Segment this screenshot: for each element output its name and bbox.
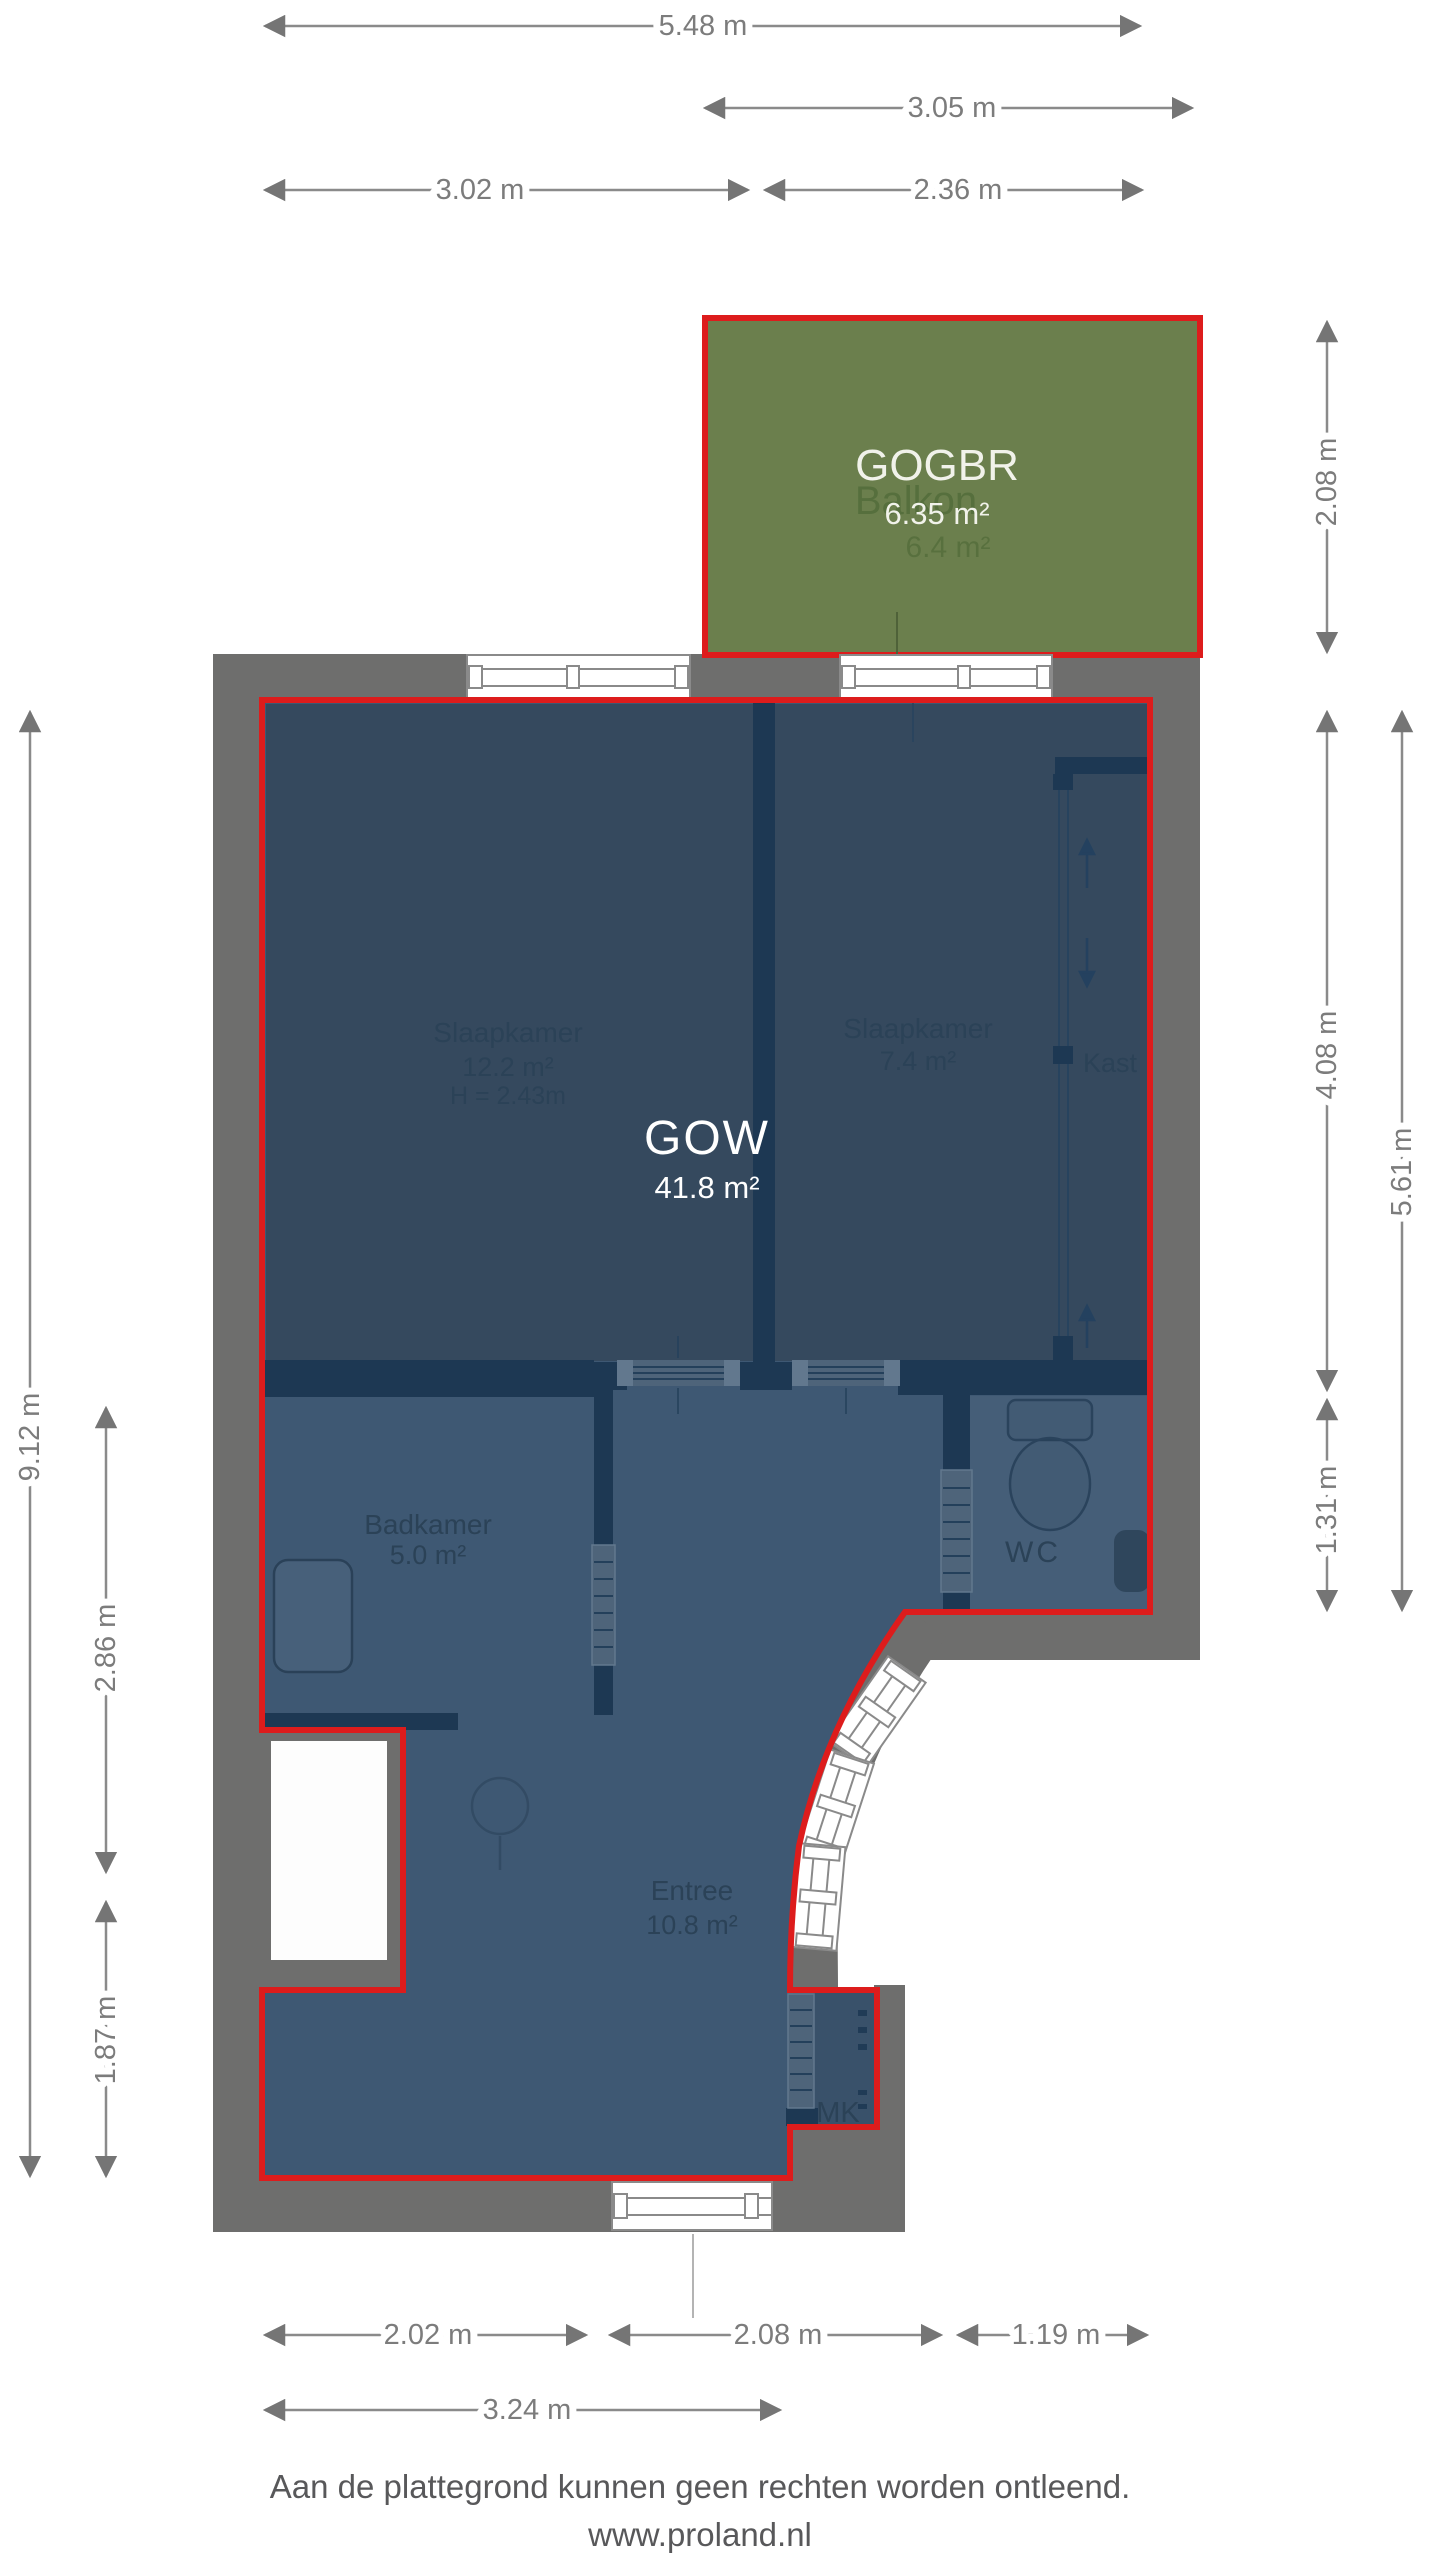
label-slaapkamer1-area: 12.2 m² — [462, 1052, 554, 1082]
dim-right-4: 5.61 m — [1386, 712, 1418, 1610]
dim-left-1: 9.12 m — [14, 712, 46, 2176]
toilet-icon — [1008, 1400, 1092, 1530]
label-kast: Kast — [1083, 1048, 1138, 1078]
dim-label: 9.12 m — [14, 1393, 46, 1482]
bathtub-icon — [274, 1560, 352, 1672]
wall-hall-2 — [740, 1362, 792, 1390]
balcony-name: GOGBR — [855, 441, 1019, 490]
dim-label: 3.05 m — [908, 92, 997, 124]
wall-mk-bottom — [790, 2124, 905, 2182]
footer-disclaimer: Aan de plattegrond kunnen geen rechten w… — [270, 2468, 1131, 2505]
label-gow-area: 41.8 m² — [654, 1170, 759, 1205]
dim-right-2: 4.08 m — [1311, 712, 1343, 1390]
label-entree-area: 10.8 m² — [646, 1910, 738, 1940]
label-wc: WC — [1005, 1536, 1061, 1569]
dim-label: 4.08 m — [1311, 1011, 1343, 1100]
dim-label: 3.02 m — [436, 174, 525, 206]
window-icon-top-left — [467, 655, 690, 700]
label-entree-name: Entree — [651, 1875, 734, 1906]
label-slaapkamer2-area: 7.4 m² — [880, 1046, 957, 1076]
label-slaapkamer2-name: Slaapkamer — [843, 1013, 992, 1044]
dim-label: 1.31 m — [1311, 1466, 1343, 1555]
wall-wc-top — [898, 1360, 1150, 1395]
dim-bottom-4: 3.24 m — [265, 2394, 780, 2426]
balcony-ghost-area: 6.4 m² — [905, 531, 990, 564]
dim-label: 2.36 m — [914, 174, 1003, 206]
dim-top-4: 2.36 m — [765, 174, 1142, 206]
dim-label: 2.08 m — [734, 2319, 823, 2351]
wall-left — [213, 654, 265, 2232]
dim-top-1: 5.48 m — [265, 10, 1140, 42]
wall-wc-left-a — [943, 1390, 970, 1470]
dim-bottom-2: 2.08 m — [610, 2319, 941, 2351]
balcony-area-label: 6.35 m² — [884, 496, 989, 531]
corner-sink-icon — [1114, 1530, 1150, 1592]
wall-bedroom-divider — [753, 700, 775, 1363]
footer-website: www.proland.nl — [587, 2516, 812, 2553]
label-badkamer-area: 5.0 m² — [390, 1540, 467, 1570]
balcony-gogbr: Balkon 6.4 m² GOGBR 6.35 m² — [705, 318, 1200, 655]
label-mk: MK — [816, 2097, 860, 2129]
dim-top-2: 3.05 m — [705, 92, 1192, 124]
bedroom-zone-shade — [266, 704, 1148, 1361]
door-icon-wc — [941, 1470, 972, 1592]
wall-wc-bottom — [905, 1612, 1200, 1660]
floorplan-drawing: Balkon 6.4 m² GOGBR 6.35 m² — [0, 0, 1436, 2560]
label-badkamer-name: Badkamer — [364, 1509, 492, 1540]
label-slaapkamer1-height: H = 2.43m — [450, 1082, 566, 1110]
label-gow-name: GOW — [644, 1112, 770, 1165]
dim-right-1: 2.08 m — [1311, 322, 1343, 652]
wall-badkamer-top — [262, 1360, 594, 1397]
window-icon-bottom — [612, 2182, 772, 2230]
dim-label: 1.19 m — [1012, 2319, 1101, 2351]
dim-left-3: 1.87 m — [90, 1902, 122, 2176]
dim-label: 1.87 m — [90, 1996, 122, 2085]
floorplan-page: Balkon 6.4 m² GOGBR 6.35 m² — [0, 0, 1436, 2560]
door-icon-badkamer — [592, 1545, 615, 1665]
wall-badkamer-right-a — [594, 1390, 613, 1545]
wall-mk-stub — [786, 2108, 818, 2126]
dim-top-3: 3.02 m — [265, 174, 748, 206]
dim-label: 5.61 m — [1386, 1128, 1418, 1217]
niche-void — [271, 1741, 387, 1960]
window-icon-top-right — [840, 655, 1052, 700]
dim-bottom-3: 1.19 m — [958, 2319, 1147, 2351]
dim-left-2: 2.86 m — [90, 1408, 122, 1872]
dim-bottom-1: 2.02 m — [265, 2319, 586, 2351]
dim-right-3: 1.31 m — [1311, 1400, 1343, 1610]
dim-label: 2.86 m — [90, 1604, 122, 1693]
door-icon-mk — [788, 1994, 814, 2108]
label-slaapkamer1-name: Slaapkamer — [433, 1017, 582, 1048]
wall-kast-top — [1055, 757, 1153, 774]
dim-label: 5.48 m — [659, 10, 748, 42]
dim-label: 3.24 m — [483, 2394, 572, 2426]
wall-bottom — [213, 2180, 905, 2232]
dim-label: 2.08 m — [1311, 438, 1343, 527]
dim-label: 2.02 m — [384, 2319, 473, 2351]
wall-right — [1153, 654, 1200, 1660]
wall-badkamer-right-b — [594, 1665, 613, 1715]
